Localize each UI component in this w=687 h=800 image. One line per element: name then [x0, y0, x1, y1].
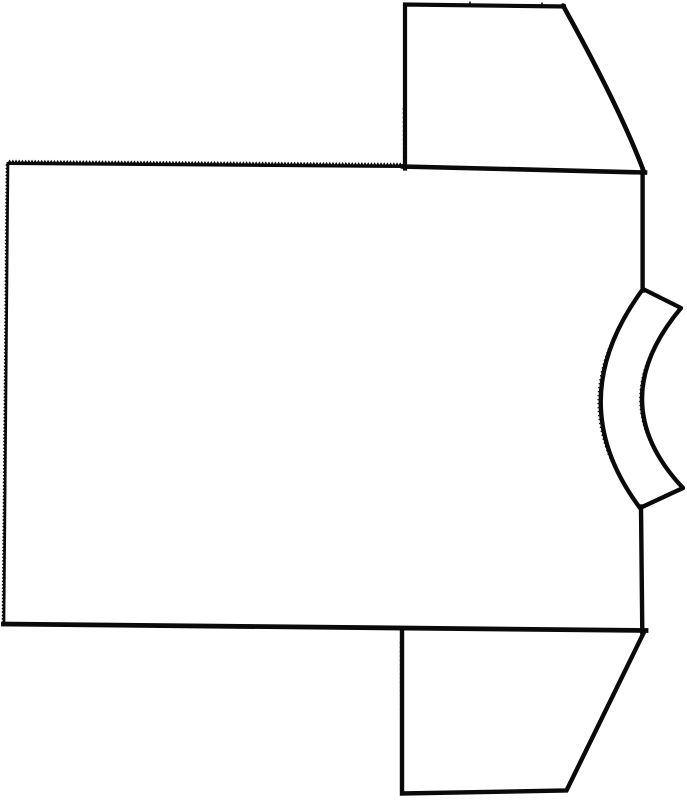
body-side-right-lower [641, 507, 642, 633]
top-sleeve-underarm [563, 6, 644, 172]
shoulder-seam [403, 167, 645, 173]
tshirt-line-drawing: T-shirt pattern piece line drawing, rota… [0, 0, 687, 800]
body-hem-bottom [4, 624, 647, 631]
neckband-collar [601, 289, 683, 508]
drawing-canvas: T-shirt pattern piece line drawing, rota… [0, 0, 687, 800]
bottom-sleeve-outline [402, 629, 644, 794]
top-sleeve-outline [405, 5, 564, 169]
